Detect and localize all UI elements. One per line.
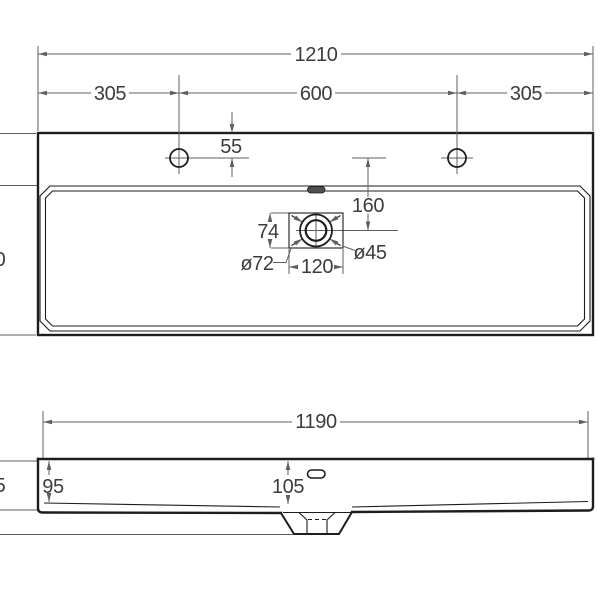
- drain-trap-outline: [281, 512, 352, 534]
- cropped-side-view-lines-top: [0, 134, 39, 336]
- clipped-height-label: 5: [0, 475, 6, 497]
- drain-box-height-label: 74: [257, 221, 279, 243]
- holes-spacing-label: 600: [300, 83, 332, 105]
- front-view: 1190 95 105 5: [0, 411, 593, 535]
- washbasin-technical-drawing: 1210 305 600 305 55 160 74 ø72 120 ø45 0…: [0, 0, 600, 600]
- overflow-slot-top: [308, 187, 326, 194]
- center-height-label: 105: [272, 476, 304, 498]
- clipped-depth-label: 0: [0, 249, 6, 271]
- left-hole-offset-label: 305: [94, 83, 126, 105]
- drain-axis-distance-label: 160: [352, 195, 384, 217]
- drain-tailpiece: [299, 513, 335, 534]
- drain-box-width-label: 120: [301, 256, 333, 278]
- right-hole-offset-label: 305: [510, 83, 542, 105]
- drain-outer-diameter-label: ø72: [240, 253, 274, 275]
- front-view-dimension-lines: [43, 422, 588, 504]
- overflow-slot-front: [308, 470, 326, 478]
- hole-edge-distance-label: 55: [220, 136, 242, 158]
- total-width-label: 1210: [295, 44, 338, 66]
- technical-drawing-canvas: 1210 305 600 305 55 160 74 ø72 120 ø45 0…: [0, 0, 600, 600]
- top-view: 1210 305 600 305 55 160 74 ø72 120 ø45 0: [0, 44, 593, 335]
- drain-inner-diameter-label: ø45: [353, 242, 387, 264]
- front-width-label: 1190: [295, 411, 337, 433]
- side-height-label: 95: [42, 476, 64, 498]
